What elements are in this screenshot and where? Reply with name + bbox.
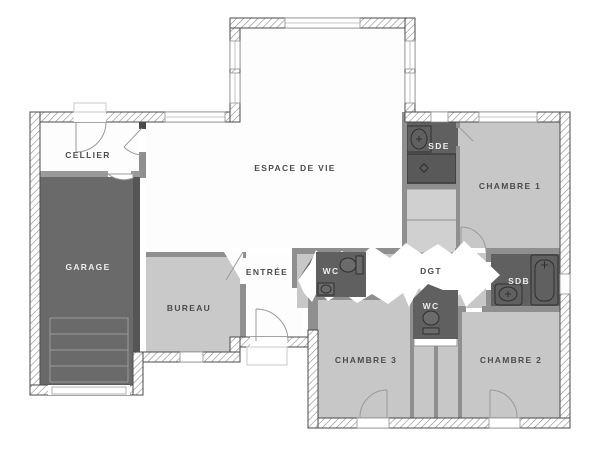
wall-closet-divider bbox=[434, 346, 438, 418]
room-label-entree: ENTRÉE bbox=[246, 267, 288, 277]
wc2-room bbox=[413, 284, 458, 339]
room-label-bureau: BUREAU bbox=[167, 303, 211, 313]
window-sdb bbox=[560, 274, 570, 294]
room-label-dgt: DGT bbox=[420, 266, 442, 276]
front-porch-step bbox=[247, 347, 287, 365]
wall-strip-right bbox=[456, 146, 460, 252]
room-label-chambre2: CHAMBRE 2 bbox=[480, 355, 542, 365]
espace-de-vie-bay-floor bbox=[240, 28, 405, 122]
room-label-chambre3: CHAMBRE 3 bbox=[335, 355, 397, 365]
toilet-tank-icon bbox=[356, 256, 363, 274]
room-label-chambre1: CHAMBRE 1 bbox=[479, 181, 541, 191]
room-label-cellier: CELLIER bbox=[65, 150, 110, 160]
shower-icon bbox=[407, 154, 456, 183]
wall-bureau-right bbox=[240, 284, 246, 337]
floor-plan-canvas: CELLIER GARAGE ESPACE DE VIE ENTRÉE BURE… bbox=[0, 0, 600, 450]
window-sde bbox=[431, 112, 448, 122]
wall-sde-bottom bbox=[402, 184, 460, 189]
room-label-wc2: WC bbox=[423, 301, 440, 311]
wall-cellier-garage bbox=[38, 171, 108, 177]
room-label-sdb: SDB bbox=[508, 276, 530, 286]
wall-espace-right bbox=[402, 112, 407, 254]
wall-garage-right bbox=[133, 177, 140, 352]
room-label-sde: SDE bbox=[428, 141, 449, 151]
window-chambre3 bbox=[357, 418, 389, 428]
wall-chambre1-bottom bbox=[486, 248, 562, 254]
wall-entree-right bbox=[292, 248, 297, 288]
wall-bay-right bbox=[405, 18, 415, 122]
handbasin-bowl-icon bbox=[321, 285, 331, 293]
chambre2-floor bbox=[461, 312, 560, 418]
room-label-espace: ESPACE DE VIE bbox=[254, 163, 335, 173]
toilet-icon bbox=[423, 311, 439, 325]
toilet-icon bbox=[340, 258, 356, 272]
cellier-stoop bbox=[74, 103, 106, 112]
room-label-wc1: WC bbox=[323, 266, 340, 276]
room-label-garage: GARAGE bbox=[65, 262, 110, 272]
wall-chambre3-left bbox=[308, 330, 318, 428]
wall-bay-left bbox=[230, 18, 240, 122]
wall-sdb-left bbox=[486, 252, 491, 262]
wall-bottom bbox=[308, 418, 570, 428]
garage-floor bbox=[38, 177, 135, 385]
espace-de-vie-floor bbox=[146, 122, 402, 248]
door-opening-cellier bbox=[74, 112, 106, 122]
window-bureau bbox=[180, 352, 203, 362]
closet-upper bbox=[405, 189, 458, 220]
floor-plan-drawing bbox=[0, 0, 600, 450]
wall-sdb-bottom bbox=[482, 306, 562, 312]
wall-right bbox=[560, 112, 570, 428]
closet-sliding-door bbox=[414, 338, 457, 346]
wall-strip-right-lower bbox=[458, 310, 462, 418]
wall-cellier-right bbox=[139, 152, 146, 178]
garage-door-icon bbox=[52, 387, 126, 394]
wall-left bbox=[30, 112, 40, 395]
toilet-tank-icon bbox=[423, 328, 439, 334]
wall-garage-right-lower bbox=[133, 352, 143, 395]
wall-chambre2-top bbox=[458, 306, 466, 312]
window-chambre2 bbox=[489, 418, 520, 428]
